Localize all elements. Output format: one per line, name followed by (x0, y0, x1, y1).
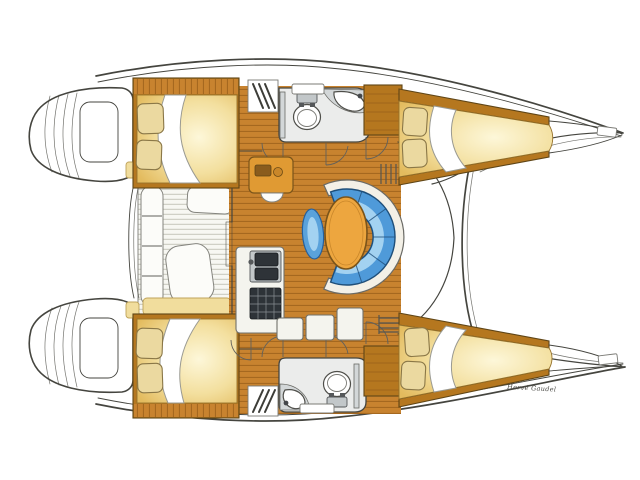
pillow (137, 103, 164, 134)
port-forward-cabin (399, 89, 622, 185)
artist-signature: Hervé Gaudel (506, 383, 557, 394)
bow-fitting (597, 126, 617, 137)
shower-partition (354, 364, 359, 408)
pillow (136, 140, 162, 170)
cabinet (337, 308, 363, 340)
cistern (297, 93, 317, 103)
starboard-forward-cabin (399, 313, 622, 407)
saloon-table (325, 197, 367, 269)
headboard-shelf (134, 404, 238, 417)
sink-basin-icon (255, 253, 278, 266)
sink-basin-icon (255, 268, 278, 280)
bow-fitting (598, 354, 618, 365)
wall-cabinet (292, 84, 324, 94)
wall-cabinet (300, 404, 334, 413)
lamp-icon (274, 168, 283, 177)
cabinet (277, 318, 303, 340)
pillow (404, 327, 430, 357)
pillow (402, 139, 427, 168)
faucet-icon (284, 401, 289, 406)
pillow (136, 328, 163, 359)
pillow (401, 361, 426, 390)
instrument (255, 165, 271, 176)
cabinet (306, 315, 334, 340)
starboard-aft-cabin (133, 314, 239, 418)
floorplan-canvas: Hervé Gaudel (0, 0, 640, 480)
pillow (402, 107, 428, 137)
pillow (137, 363, 163, 393)
aft-crossbeam (129, 184, 134, 298)
floorplan-page: Hervé Gaudel (0, 0, 640, 480)
cockpit-cushion (164, 242, 216, 306)
cockpit-side-seat-cushion (143, 298, 231, 315)
faucet-icon (248, 259, 253, 264)
stove-icon (250, 288, 281, 319)
headboard-shelf (134, 79, 238, 94)
port-companionway-steps (248, 80, 278, 112)
starboard-companionway-steps (248, 386, 278, 416)
forward-crossbeam (462, 167, 480, 339)
faucet-icon (358, 94, 363, 99)
port-stern-platform (29, 88, 133, 182)
shower-partition (280, 92, 285, 138)
cockpit-cushion (187, 186, 234, 214)
port-aft-cabin (133, 78, 239, 188)
starboard-stern-platform (29, 299, 133, 393)
